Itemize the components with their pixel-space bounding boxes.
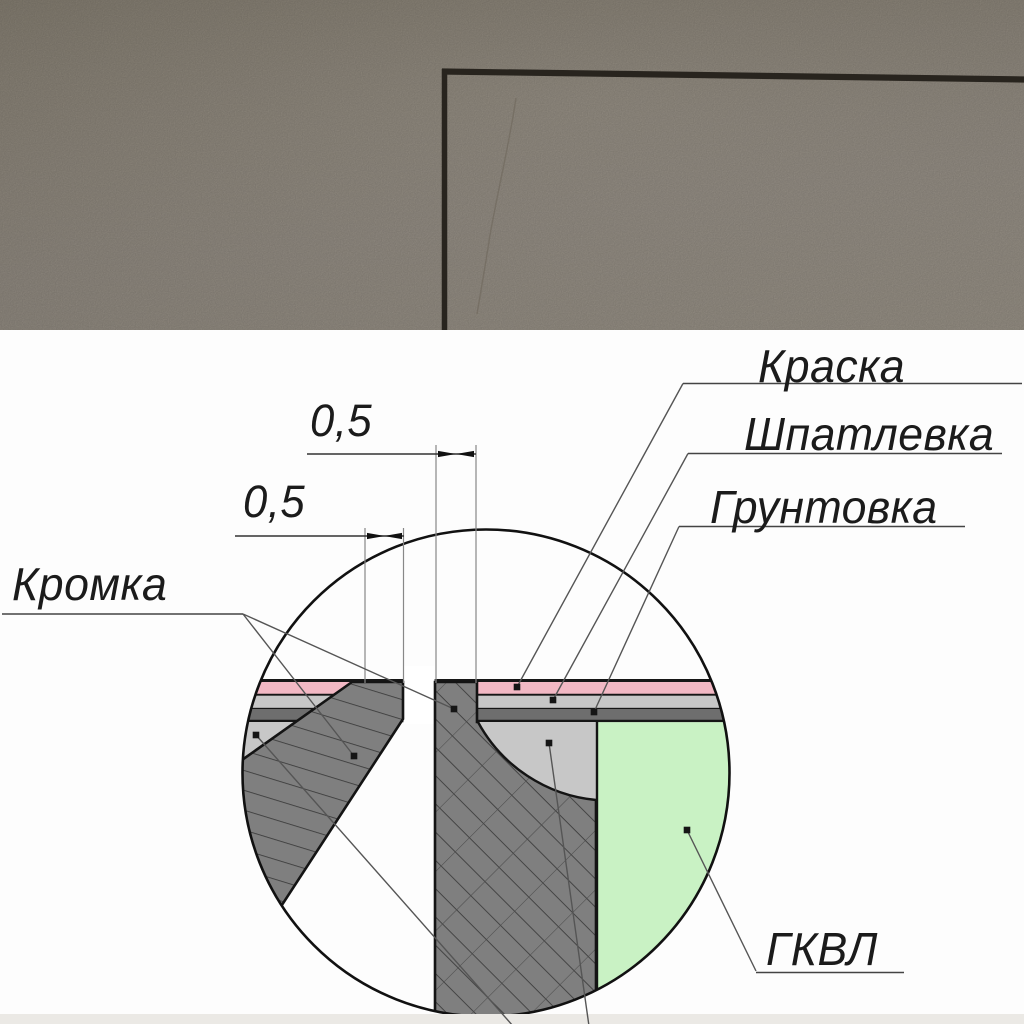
dimension-value-left: 0,5: [243, 477, 305, 527]
dimension-value-top: 0,5: [310, 396, 372, 446]
callout-putty-label: Шпатлевка: [744, 409, 994, 459]
callout-board-label: ГКВЛ: [766, 924, 878, 974]
callout-paint-label: Краска: [758, 341, 905, 391]
dimension-arrows: [367, 451, 474, 539]
paint-layer: [232, 682, 742, 694]
page: { "photo": { "colors": { "wall": "#968f8…: [0, 0, 1024, 1024]
board-face-gkvl: [597, 721, 748, 1017]
leader-board: [687, 830, 756, 971]
callout-primer-label: Грунтовка: [710, 482, 938, 532]
bottom-strip: [0, 1014, 1024, 1024]
detail-circle-content: [150, 666, 748, 1024]
callout-edge-label: Кромка: [12, 559, 167, 609]
extension-lines: [365, 445, 476, 683]
joint-gap: [403, 666, 434, 724]
leader-putty: [553, 454, 688, 701]
